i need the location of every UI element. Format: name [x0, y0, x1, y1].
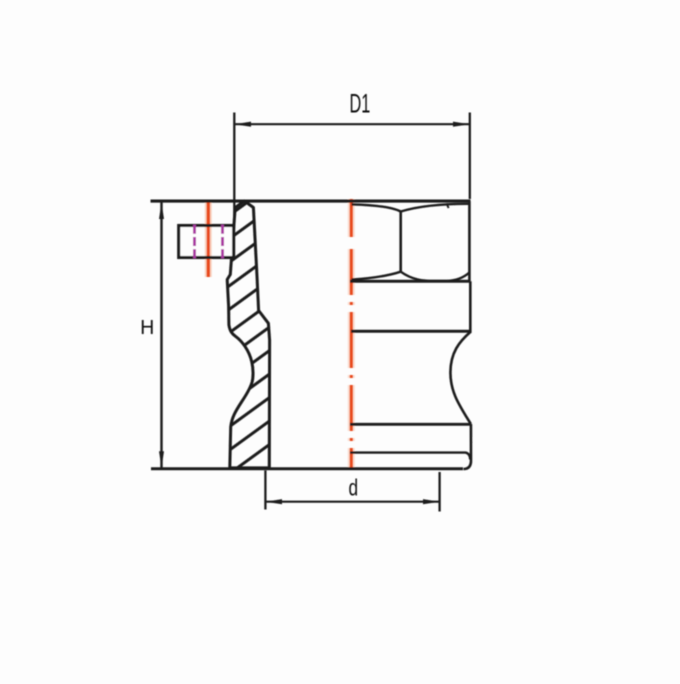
svg-text:H: H — [140, 316, 154, 339]
svg-text:D1: D1 — [350, 89, 371, 119]
svg-text:d: d — [349, 474, 359, 500]
